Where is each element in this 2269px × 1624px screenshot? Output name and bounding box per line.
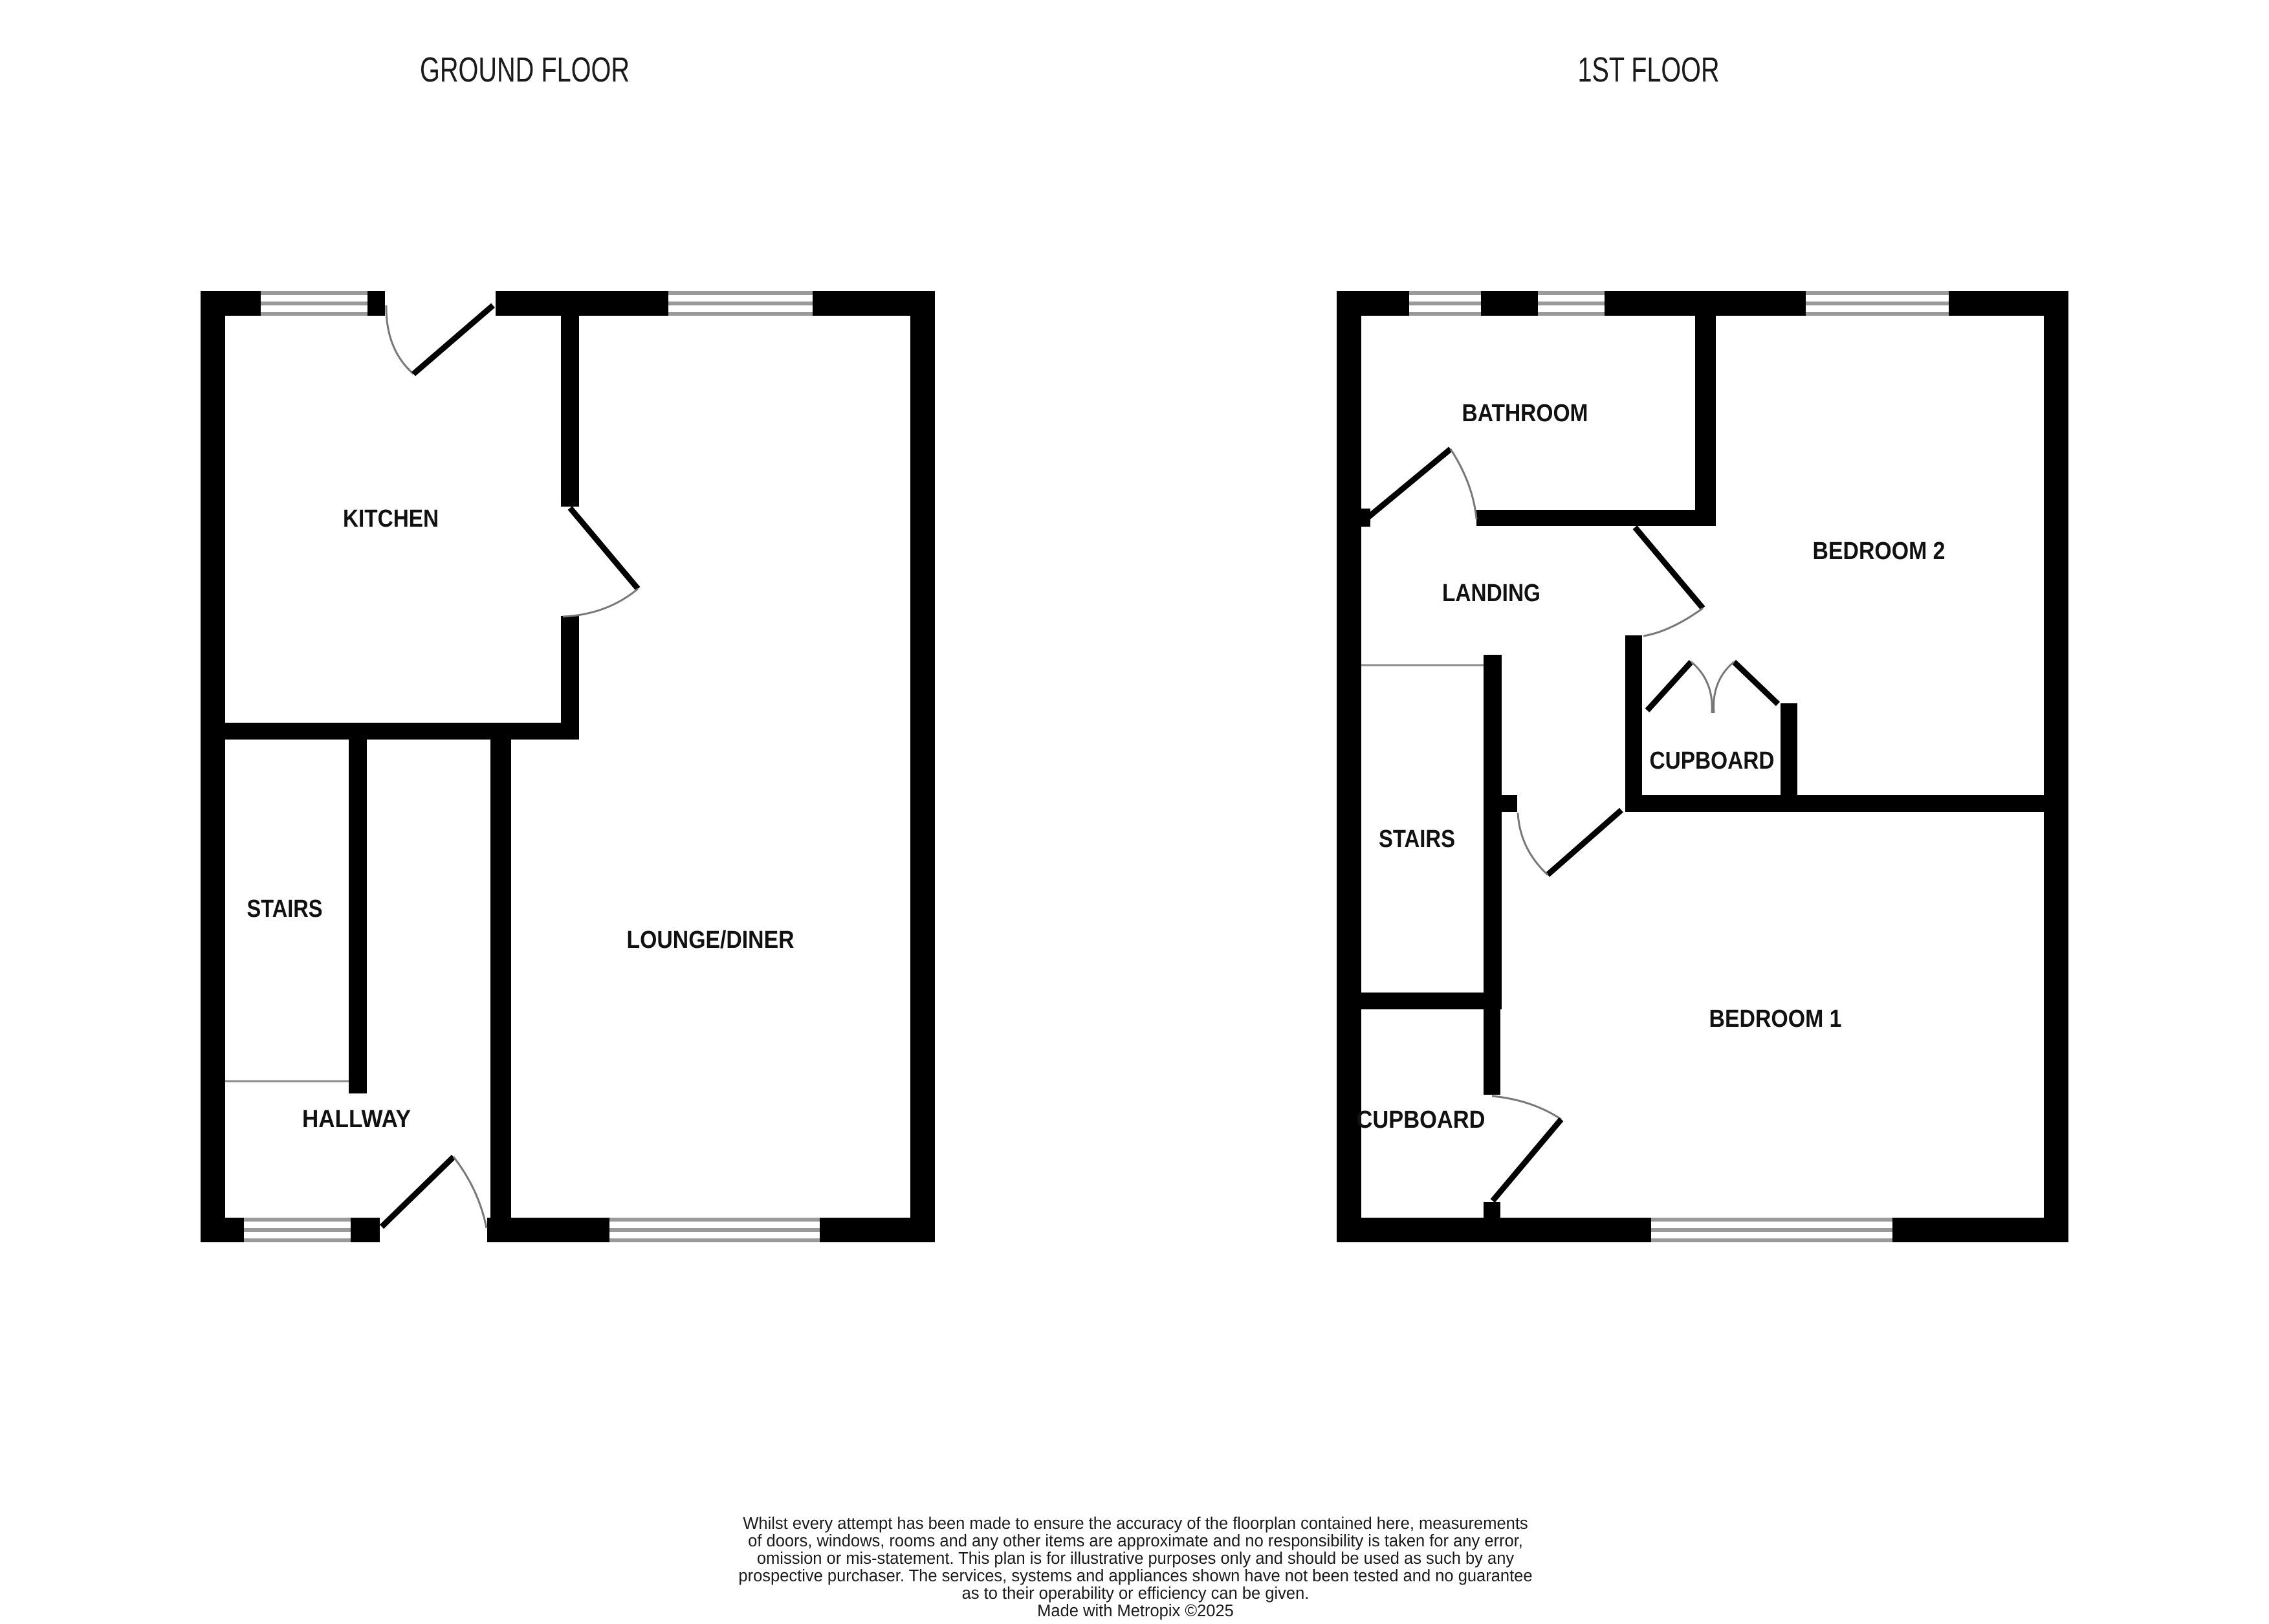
- door-lower-cupboard: [1492, 1096, 1561, 1201]
- ground-floor-walls: [201, 291, 935, 1242]
- wall: [496, 291, 668, 316]
- wall-bedroom1-top: [1625, 795, 2044, 812]
- wall: [201, 291, 225, 1242]
- door-cupboard-double: [1647, 662, 1778, 713]
- room-label-hallway: HALLWAY: [302, 1106, 411, 1133]
- wall: [2044, 291, 2068, 1242]
- wall: [201, 1218, 244, 1242]
- wall-stub-lower-cupboard-door: [1484, 1202, 1500, 1219]
- wall-bathroom-right: [1695, 316, 1716, 526]
- wall: [910, 291, 935, 1242]
- door-bathroom: [1368, 449, 1476, 519]
- ground-floor-windows: [244, 291, 820, 1242]
- room-label-lounge-diner: LOUNGE/DINER: [627, 927, 795, 954]
- wall: [367, 291, 385, 316]
- wall: [351, 1218, 380, 1242]
- wall-kitchen-divider: [561, 616, 579, 740]
- door-bedroom1: [1518, 810, 1621, 875]
- window-bedroom2: [1806, 291, 1949, 316]
- wall-stairs: [349, 740, 367, 1093]
- door-front-entrance: [382, 1157, 487, 1228]
- wall: [1605, 291, 1806, 316]
- window-lounge-top: [668, 291, 813, 316]
- window-bathroom-right: [1538, 291, 1605, 316]
- disclaimer-line: of doors, windows, rooms and any other i…: [748, 1532, 1523, 1550]
- wall-stairs: [1484, 655, 1502, 1009]
- door-bedroom2: [1635, 527, 1703, 636]
- window-lounge-bottom: [609, 1218, 820, 1242]
- room-label-landing: LANDING: [1442, 580, 1540, 607]
- door-kitchen-to-lounge: [563, 508, 638, 617]
- wall-lower-cupboard: [1484, 1009, 1500, 1095]
- room-label-stairs-ground: STAIRS: [247, 895, 323, 923]
- wall: [820, 1218, 935, 1242]
- window-bathroom-left: [1409, 291, 1481, 316]
- wall-bathroom-bottom: [1476, 510, 1716, 526]
- wall-stairs-bottom: [1361, 993, 1502, 1009]
- window-bedroom1: [1651, 1218, 1892, 1242]
- disclaimer: Whilst every attempt has been made to en…: [738, 1515, 1532, 1620]
- ground-floor-plan: GROUND FLOOR: [201, 50, 935, 1242]
- room-label-bedroom2: BEDROOM 2: [1813, 538, 1946, 565]
- ground-floor-title: GROUND FLOOR: [420, 50, 630, 89]
- floorplan-page: GROUND FLOOR: [0, 0, 2269, 1624]
- door-kitchen-rear: [386, 305, 493, 374]
- room-label-cupboard-top: CUPBOARD: [1650, 747, 1775, 774]
- window-hallway: [244, 1218, 351, 1242]
- wall-kitchen-divider: [561, 316, 579, 507]
- room-label-cupboard-lower: CUPBOARD: [1357, 1106, 1485, 1134]
- wall: [487, 1218, 609, 1242]
- disclaimer-line: omission or mis-statement. This plan is …: [757, 1550, 1515, 1568]
- wall-lounge-left: [490, 740, 511, 1218]
- wall-cupboard-left: [1625, 635, 1642, 812]
- wall-stub-bedroom1-door: [1502, 795, 1517, 812]
- first-floor-doors: [1368, 449, 1778, 1201]
- first-floor-plan: 1ST FLOOR: [1337, 50, 2068, 1242]
- wall: [1337, 291, 1361, 1242]
- room-label-bedroom1: BEDROOM 1: [1709, 1005, 1842, 1033]
- floorplan-canvas: GROUND FLOOR: [0, 0, 2269, 1624]
- room-label-bathroom: BATHROOM: [1462, 400, 1588, 427]
- wall: [1337, 1218, 1651, 1242]
- wall-kitchen-bottom: [225, 723, 579, 740]
- wall: [1481, 291, 1538, 316]
- disclaimer-line: Whilst every attempt has been made to en…: [743, 1515, 1528, 1533]
- disclaimer-credit-line: Made with Metropix ©2025: [1037, 1602, 1234, 1620]
- first-floor-title: 1ST FLOOR: [1578, 50, 1720, 89]
- room-label-stairs-first: STAIRS: [1379, 826, 1455, 853]
- disclaimer-line: prospective purchaser. The services, sys…: [738, 1567, 1532, 1585]
- disclaimer-line: as to their operability or efficiency ca…: [962, 1585, 1310, 1603]
- window-kitchen: [261, 291, 367, 316]
- room-label-kitchen: KITCHEN: [343, 505, 439, 532]
- wall: [1892, 1218, 2068, 1242]
